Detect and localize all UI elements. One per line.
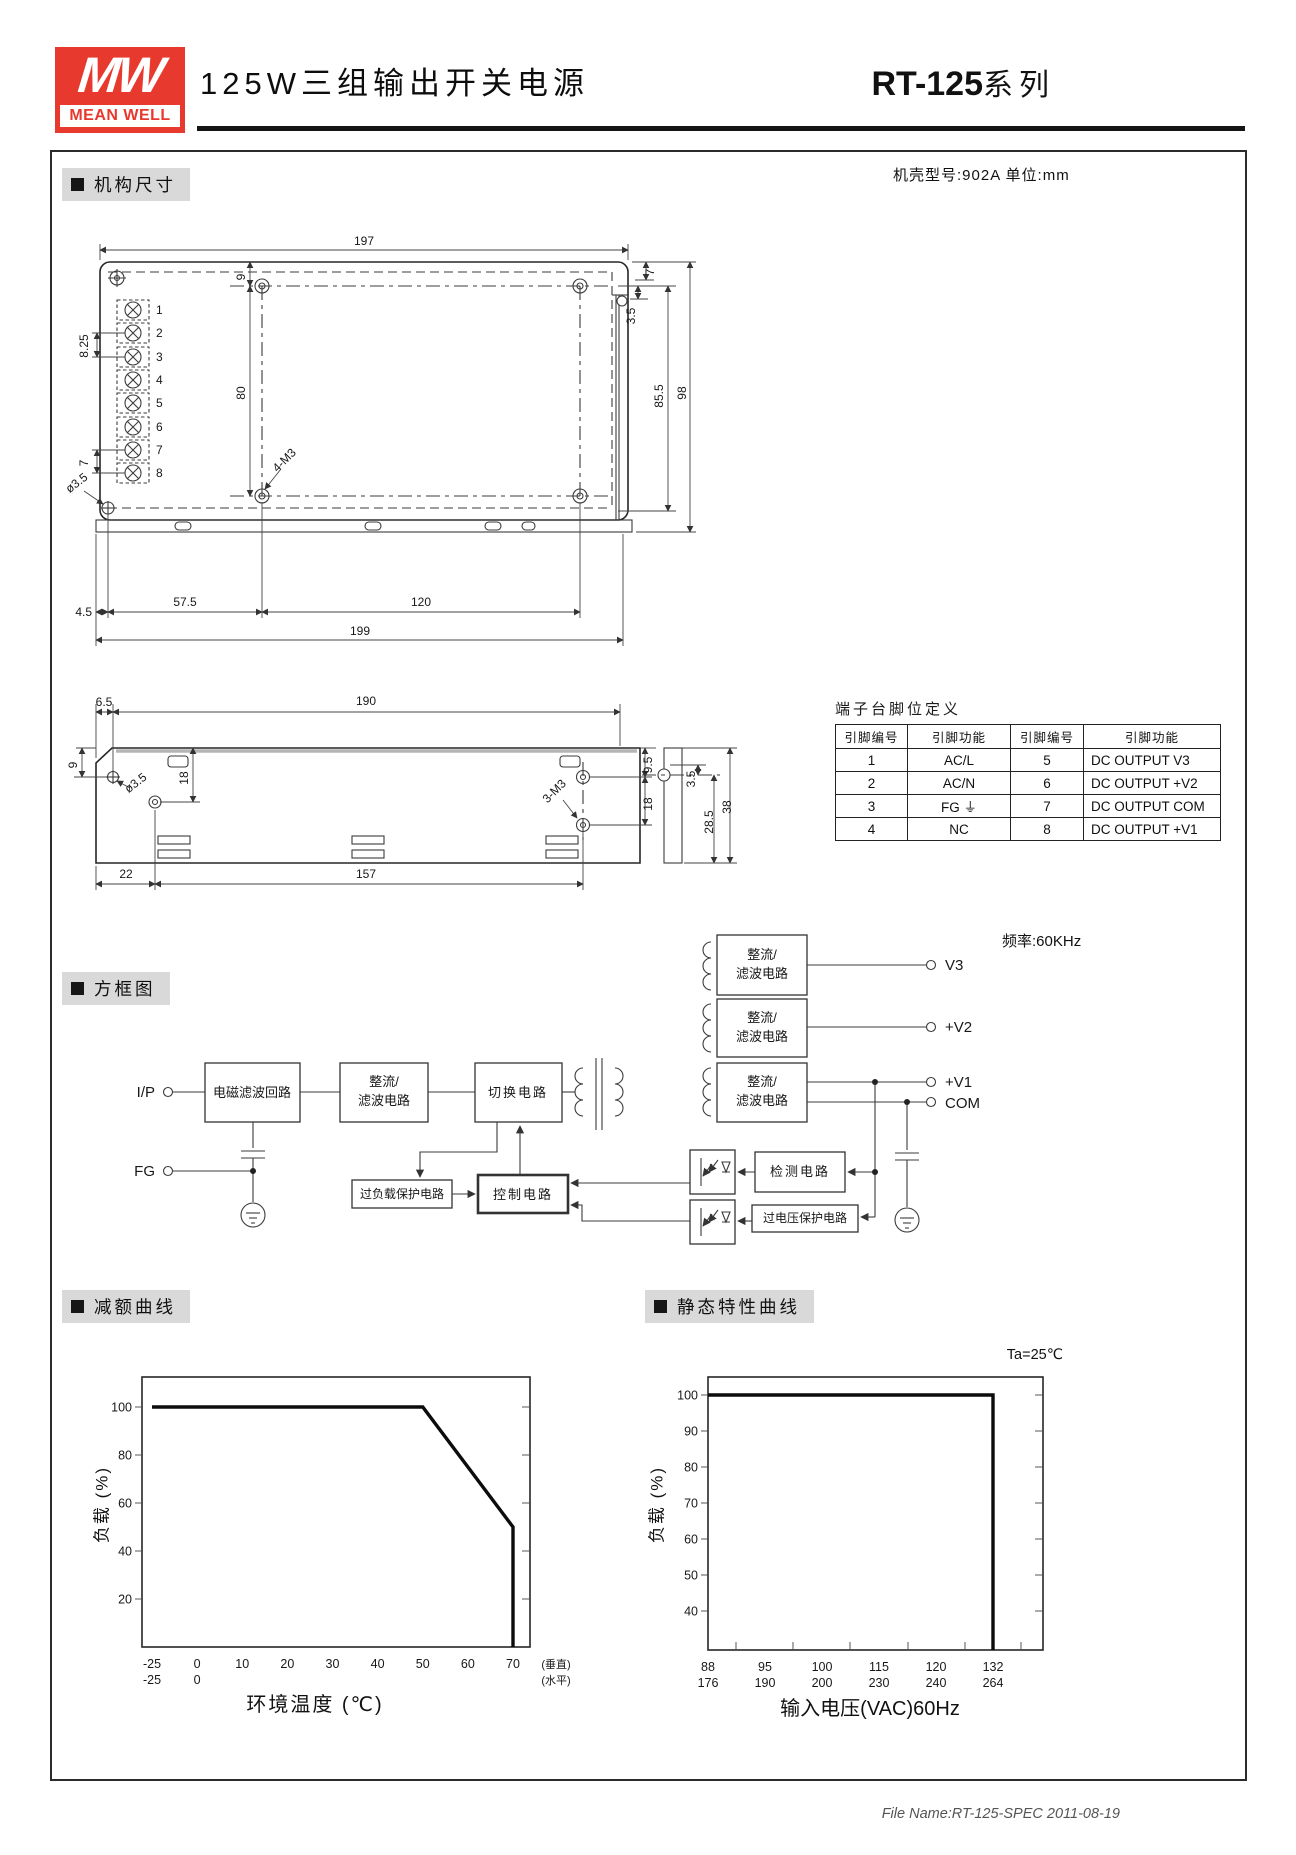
static-chart: 1009080706050408895100115120132176190200… bbox=[677, 1377, 1043, 1690]
axis-note: (水平) bbox=[541, 1674, 570, 1687]
mech-side-view: 6.51909ø3.5189.5183-M33.528.53822157 bbox=[66, 694, 737, 890]
side-view-dimensions bbox=[74, 704, 737, 890]
y-tick-label: 70 bbox=[684, 1497, 698, 1511]
x-tick-label-row2: 230 bbox=[869, 1676, 890, 1690]
derating-chart: 10080604020-25010203040506070-250(垂直)(水平… bbox=[111, 1377, 571, 1687]
annotation-label: 2 bbox=[156, 326, 163, 340]
y-tick-label: 60 bbox=[684, 1533, 698, 1547]
mech-top-labels: 1979808.25712345678ø3.54-M373.585.5984.5… bbox=[63, 234, 689, 638]
annotation-label: 190 bbox=[356, 694, 376, 708]
annotation-label: 4.5 bbox=[75, 605, 92, 619]
x-tick-label-row2: 240 bbox=[926, 1676, 947, 1690]
x-tick-label: 100 bbox=[812, 1660, 833, 1674]
annotation-label: 整流/ bbox=[747, 1010, 777, 1025]
annotation-label: 6 bbox=[156, 420, 163, 434]
annotation-label: 7 bbox=[643, 268, 657, 275]
annotation-label: 3.5 bbox=[684, 770, 698, 787]
datasheet-page: MW MEAN WELL 125W三组输出开关电源 RT-125系列 机构尺寸 … bbox=[0, 0, 1296, 1855]
annotation-label: 6.5 bbox=[96, 695, 113, 709]
annotation-label: I/P bbox=[137, 1084, 155, 1101]
x-tick-label: 132 bbox=[983, 1660, 1004, 1674]
annotation-label: FG bbox=[134, 1163, 155, 1180]
block-diagram: I/PFG电磁滤波回路整流/滤波电路切换电路整流/滤波电路整流/滤波电路整流/滤… bbox=[134, 935, 980, 1244]
y-tick-label: 60 bbox=[118, 1497, 132, 1511]
annotation-label: 1 bbox=[156, 303, 163, 317]
x-tick-label-row2: 0 bbox=[194, 1673, 201, 1687]
derating-curve-line bbox=[152, 1407, 513, 1647]
annotation-label: 8 bbox=[156, 466, 163, 480]
annotation-label: 9 bbox=[66, 761, 80, 768]
x-tick-label-row2: 200 bbox=[812, 1676, 833, 1690]
top-view-dimensions bbox=[84, 244, 696, 646]
terminal-block bbox=[117, 300, 149, 483]
x-tick-label: 0 bbox=[194, 1657, 201, 1671]
y-tick-label: 100 bbox=[677, 1389, 698, 1403]
line-art: 1979808.25712345678ø3.54-M373.585.5984.5… bbox=[0, 0, 1296, 1855]
annotation-label: ø3.5 bbox=[122, 770, 150, 796]
derating-chart-ticks: 10080604020-25010203040506070-250(垂直)(水平… bbox=[111, 1401, 571, 1688]
annotation-label: 98 bbox=[675, 386, 689, 400]
x-tick-label: 120 bbox=[926, 1660, 947, 1674]
annotation-label: 切换电路 bbox=[488, 1085, 548, 1100]
x-tick-label-row2: -25 bbox=[143, 1673, 161, 1687]
annotation-label: 过电压保护电路 bbox=[763, 1210, 847, 1225]
x-tick-label: 115 bbox=[869, 1660, 889, 1674]
annotation-label: 4 bbox=[156, 373, 163, 387]
y-tick-label: 50 bbox=[684, 1569, 698, 1583]
static-curve-line bbox=[708, 1395, 993, 1650]
x-tick-label: 95 bbox=[758, 1660, 772, 1674]
annotation-label: 5 bbox=[156, 396, 163, 410]
axis-note: (垂直) bbox=[541, 1657, 570, 1671]
x-tick-label-row2: 190 bbox=[755, 1676, 776, 1690]
annotation-label: 检测电路 bbox=[770, 1164, 830, 1179]
x-tick-label-row2: 176 bbox=[698, 1676, 719, 1690]
annotation-label: 滤波电路 bbox=[736, 1029, 788, 1044]
annotation-label: 8.25 bbox=[77, 334, 91, 358]
y-tick-label: 90 bbox=[684, 1425, 698, 1439]
annotation-label: 滤波电路 bbox=[736, 1093, 788, 1108]
annotation-label: 整流/ bbox=[747, 947, 777, 962]
y-tick-label: 20 bbox=[118, 1593, 132, 1607]
y-tick-label: 80 bbox=[118, 1449, 132, 1463]
annotation-label: 4-M3 bbox=[270, 445, 299, 474]
x-tick-label: 50 bbox=[416, 1657, 430, 1671]
x-tick-label: 10 bbox=[235, 1657, 249, 1671]
annotation-label: V3 bbox=[945, 957, 963, 974]
x-tick-label: 20 bbox=[280, 1657, 294, 1671]
annotation-label: 57.5 bbox=[173, 595, 197, 609]
annotation-label: 7 bbox=[156, 443, 163, 457]
y-tick-label: 80 bbox=[684, 1461, 698, 1475]
y-tick-label: 100 bbox=[111, 1401, 132, 1415]
annotation-label: 9 bbox=[234, 273, 248, 280]
annotation-label: 38 bbox=[720, 800, 734, 814]
annotation-label: 18 bbox=[641, 797, 655, 811]
mech-top-view: 1979808.25712345678ø3.54-M373.585.5984.5… bbox=[63, 234, 696, 646]
annotation-label: 3.5 bbox=[624, 307, 638, 324]
x-tick-label-row2: 264 bbox=[983, 1676, 1004, 1690]
annotation-label: 80 bbox=[234, 386, 248, 400]
annotation-label: 120 bbox=[411, 595, 431, 609]
y-tick-label: 40 bbox=[684, 1605, 698, 1619]
mounting-holes bbox=[101, 269, 587, 515]
x-tick-label: 40 bbox=[371, 1657, 385, 1671]
annotation-label: 157 bbox=[356, 867, 376, 881]
x-tick-label: 30 bbox=[326, 1657, 340, 1671]
annotation-label: 滤波电路 bbox=[358, 1093, 410, 1108]
mech-side-labels: 6.51909ø3.5189.5183-M33.528.53822157 bbox=[66, 694, 734, 881]
annotation-label: +V2 bbox=[945, 1019, 972, 1036]
x-tick-label: 60 bbox=[461, 1657, 475, 1671]
transformer-icon bbox=[575, 942, 711, 1130]
annotation-label: 18 bbox=[177, 771, 191, 785]
annotation-label: 电磁滤波回路 bbox=[213, 1085, 291, 1100]
annotation-label: 控制电路 bbox=[493, 1187, 553, 1202]
static-chart-ticks: 1009080706050408895100115120132176190200… bbox=[677, 1389, 1043, 1691]
annotation-label: 3 bbox=[156, 350, 163, 364]
annotation-label: 199 bbox=[350, 624, 370, 638]
annotation-label: 滤波电路 bbox=[736, 966, 788, 981]
x-tick-label: 88 bbox=[701, 1660, 715, 1674]
annotation-label: 9.5 bbox=[641, 756, 655, 773]
x-tick-label: 70 bbox=[506, 1657, 520, 1671]
annotation-label: 整流/ bbox=[747, 1074, 777, 1089]
annotation-label: 7 bbox=[77, 459, 91, 466]
annotation-label: 22 bbox=[119, 867, 133, 881]
annotation-label: 过负载保护电路 bbox=[360, 1186, 444, 1201]
annotation-label: +V1 bbox=[945, 1074, 972, 1091]
annotation-label: COM bbox=[945, 1095, 980, 1112]
annotation-label: 整流/ bbox=[369, 1074, 399, 1089]
annotation-label: ø3.5 bbox=[63, 470, 91, 496]
annotation-label: 197 bbox=[354, 234, 374, 248]
annotation-label: 85.5 bbox=[652, 384, 666, 408]
x-tick-label: -25 bbox=[143, 1657, 161, 1671]
annotation-label: 28.5 bbox=[702, 810, 716, 834]
y-tick-label: 40 bbox=[118, 1545, 132, 1559]
